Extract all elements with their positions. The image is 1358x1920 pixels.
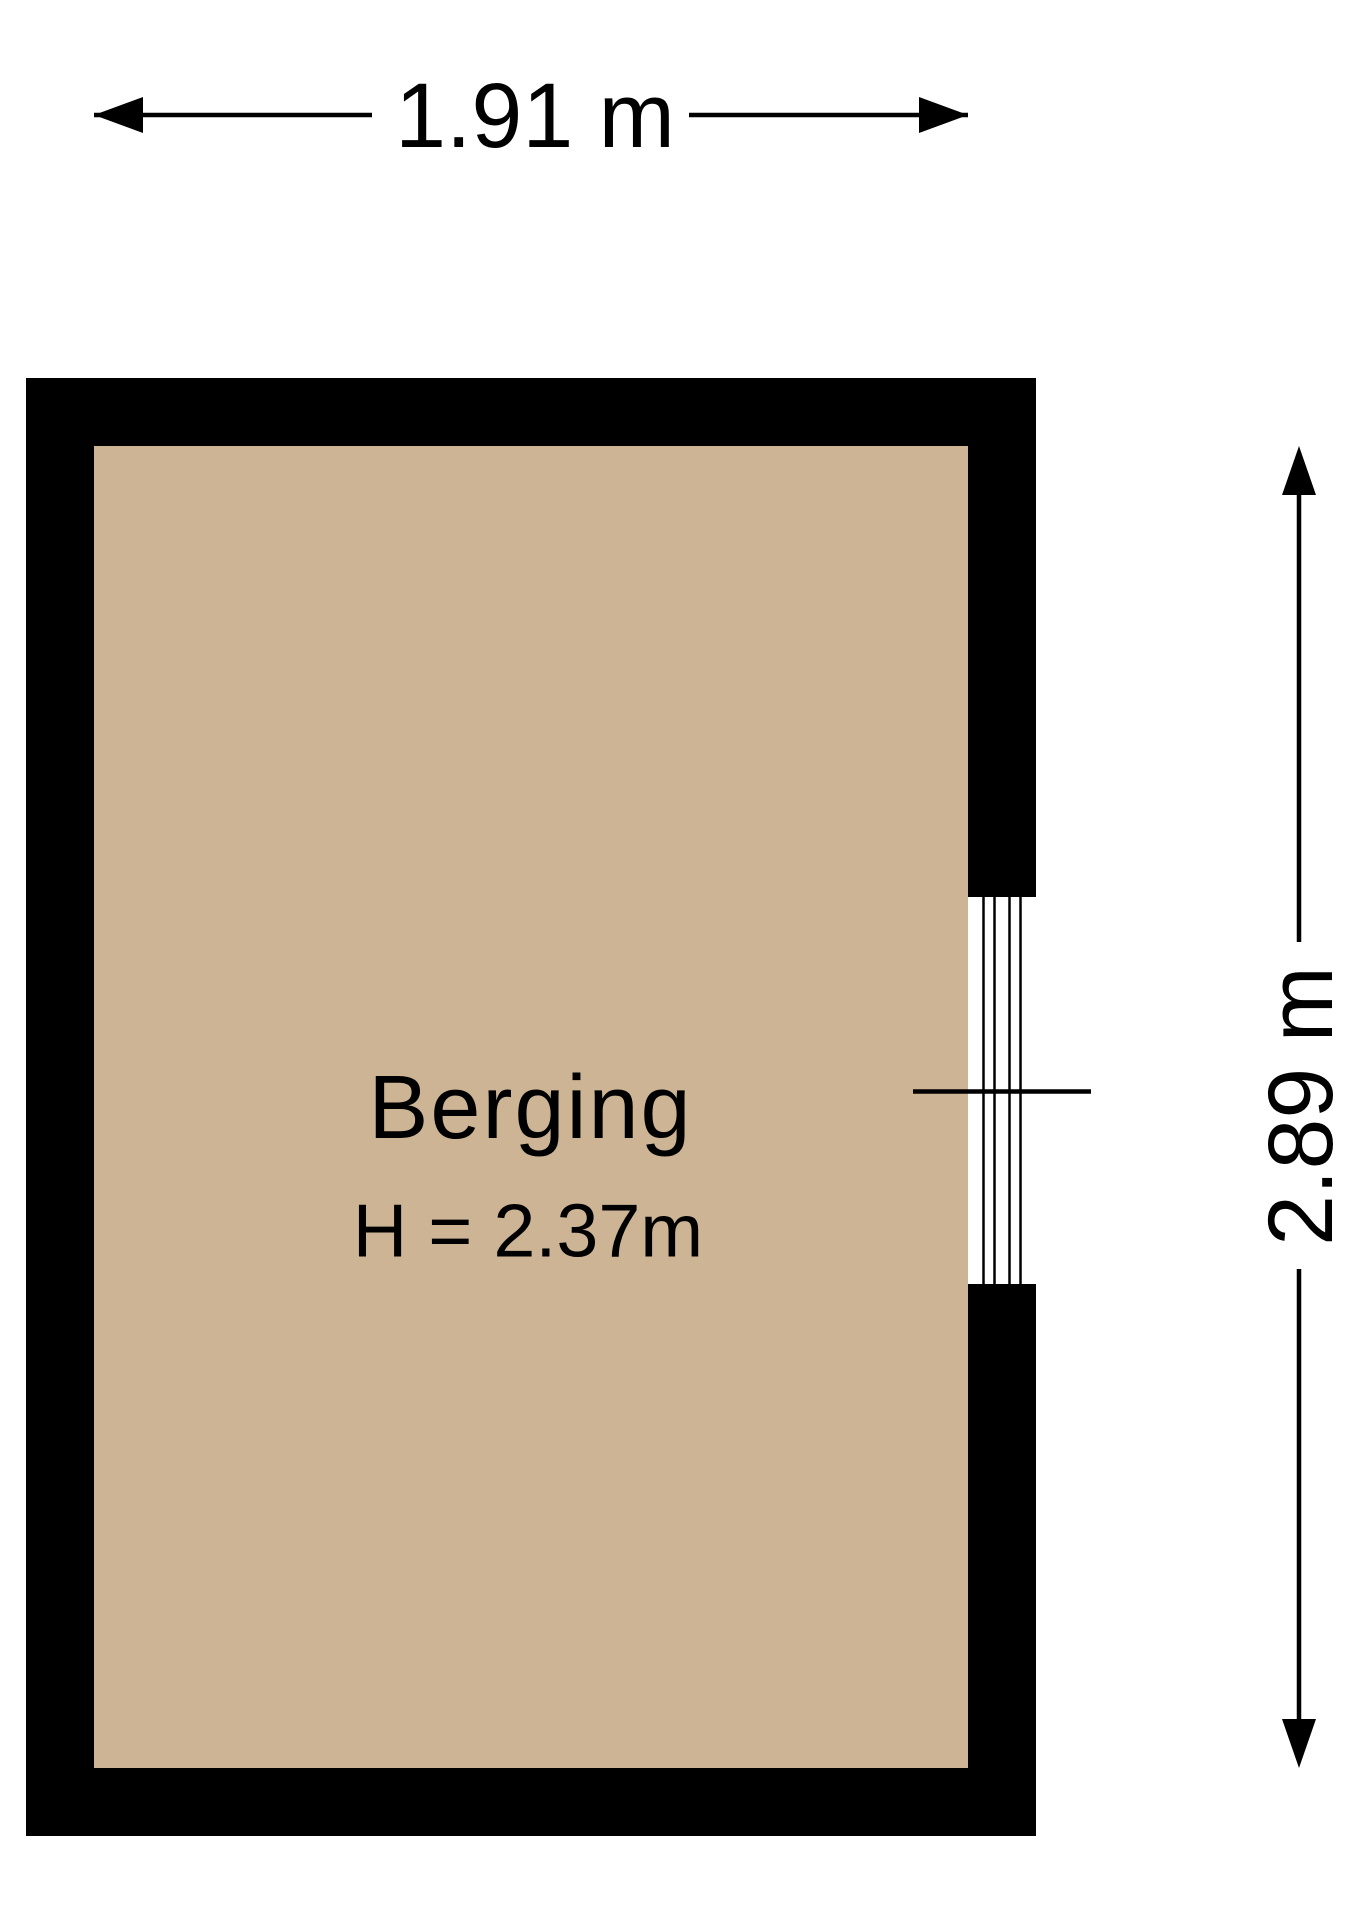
svg-text:1.91 m: 1.91 m — [395, 65, 675, 167]
svg-text:H = 2.37m: H = 2.37m — [353, 1189, 703, 1273]
svg-text:2.89 m: 2.89 m — [1250, 966, 1352, 1246]
svg-text:Berging: Berging — [368, 1058, 692, 1158]
